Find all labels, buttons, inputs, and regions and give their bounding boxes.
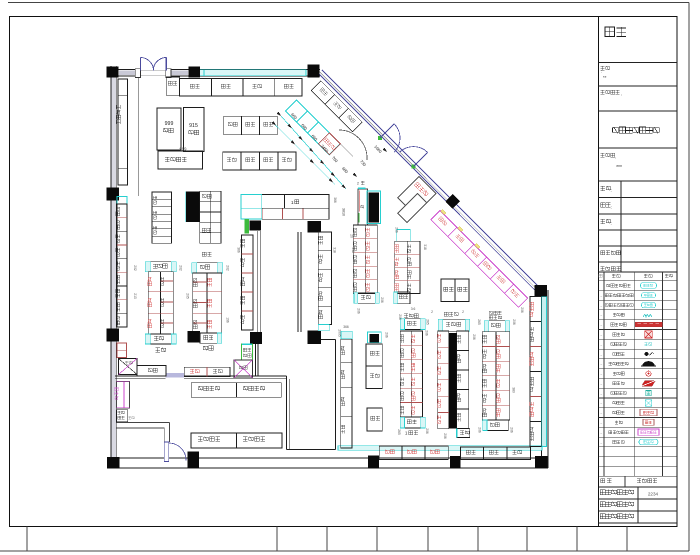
svg-text:999: 999	[180, 147, 188, 152]
svg-text:206: 206	[380, 297, 384, 303]
svg-text:265: 265	[397, 429, 401, 435]
svg-text:~: ~	[600, 295, 602, 299]
svg-text:206: 206	[425, 330, 429, 336]
svg-text:~: ~	[600, 432, 602, 436]
svg-text:~: ~	[600, 422, 602, 426]
svg-text:2005: 2005	[338, 329, 342, 337]
svg-text:206: 206	[520, 307, 524, 313]
svg-text::: :	[601, 69, 602, 74]
svg-text:206: 206	[472, 334, 476, 340]
svg-text:**: **	[603, 75, 607, 80]
svg-text:206: 206	[357, 308, 361, 314]
svg-text:915: 915	[189, 123, 198, 129]
svg-text:~: ~	[600, 304, 602, 308]
svg-text:***: ***	[616, 165, 622, 171]
svg-text:3810: 3810	[342, 208, 346, 216]
svg-text:380: 380	[512, 387, 516, 393]
svg-text:999: 999	[165, 121, 174, 127]
svg-text:~: ~	[600, 392, 602, 396]
svg-text:265: 265	[426, 319, 430, 325]
svg-text:~: ~	[600, 324, 602, 328]
svg-text:2: 2	[462, 310, 464, 314]
svg-text:206: 206	[478, 427, 482, 433]
svg-text:2234: 2234	[648, 492, 659, 497]
svg-text::: :	[611, 188, 612, 193]
svg-text:~: ~	[600, 344, 602, 348]
svg-text:206: 206	[512, 319, 516, 325]
svg-text::: :	[615, 155, 616, 160]
svg-text::: :	[611, 205, 612, 210]
svg-text:2: 2	[357, 182, 359, 186]
svg-text:206: 206	[443, 433, 447, 439]
svg-text:~: ~	[600, 402, 602, 406]
svg-text:~: ~	[600, 373, 602, 377]
svg-text:318: 318	[333, 247, 337, 253]
svg-text:206: 206	[395, 227, 399, 233]
svg-text::: :	[611, 221, 612, 226]
svg-text:366: 366	[237, 247, 241, 253]
svg-text:318: 318	[351, 247, 355, 253]
svg-text::: :	[621, 92, 622, 97]
svg-text:206: 206	[398, 314, 402, 320]
svg-text:265: 265	[477, 319, 481, 325]
svg-text:202: 202	[133, 265, 137, 271]
svg-text:~: ~	[600, 441, 602, 445]
svg-text:196: 196	[226, 317, 230, 323]
svg-text:318: 318	[423, 244, 427, 250]
svg-text:213: 213	[133, 293, 137, 299]
svg-text:~: ~	[600, 383, 602, 387]
svg-text:1: 1	[291, 200, 294, 205]
svg-text:~: ~	[600, 412, 602, 416]
svg-text:3:6: 3:6	[411, 307, 416, 311]
svg-text:202: 202	[226, 265, 230, 271]
svg-text:~: ~	[600, 314, 602, 318]
svg-text:~: ~	[600, 334, 602, 338]
svg-text:366: 366	[343, 325, 349, 329]
svg-text:206: 206	[385, 332, 389, 338]
svg-text:~: ~	[600, 353, 602, 357]
svg-text:2: 2	[431, 310, 433, 314]
svg-text:206: 206	[425, 428, 429, 434]
svg-text:366: 366	[333, 197, 337, 203]
svg-text:202: 202	[179, 265, 183, 271]
svg-text:205: 205	[186, 293, 190, 299]
svg-text:206: 206	[510, 427, 514, 433]
svg-text:~: ~	[600, 363, 602, 367]
